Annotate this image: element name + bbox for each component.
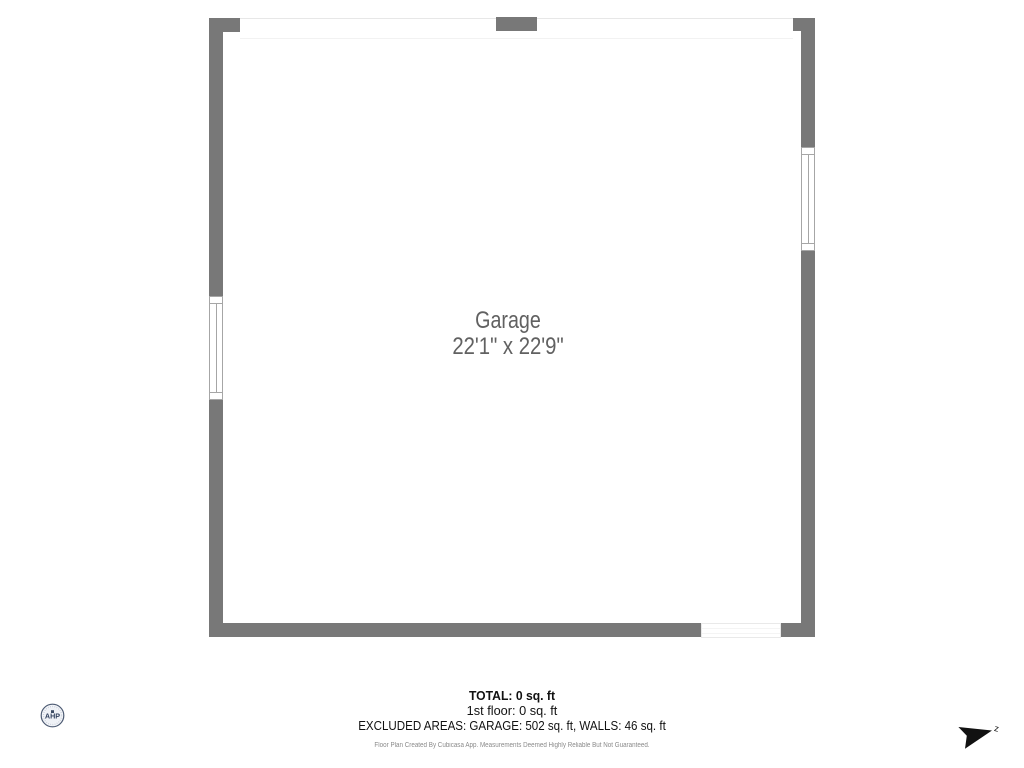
svg-text:z: z — [993, 723, 1000, 734]
svg-text:AHP: AHP — [45, 712, 60, 721]
